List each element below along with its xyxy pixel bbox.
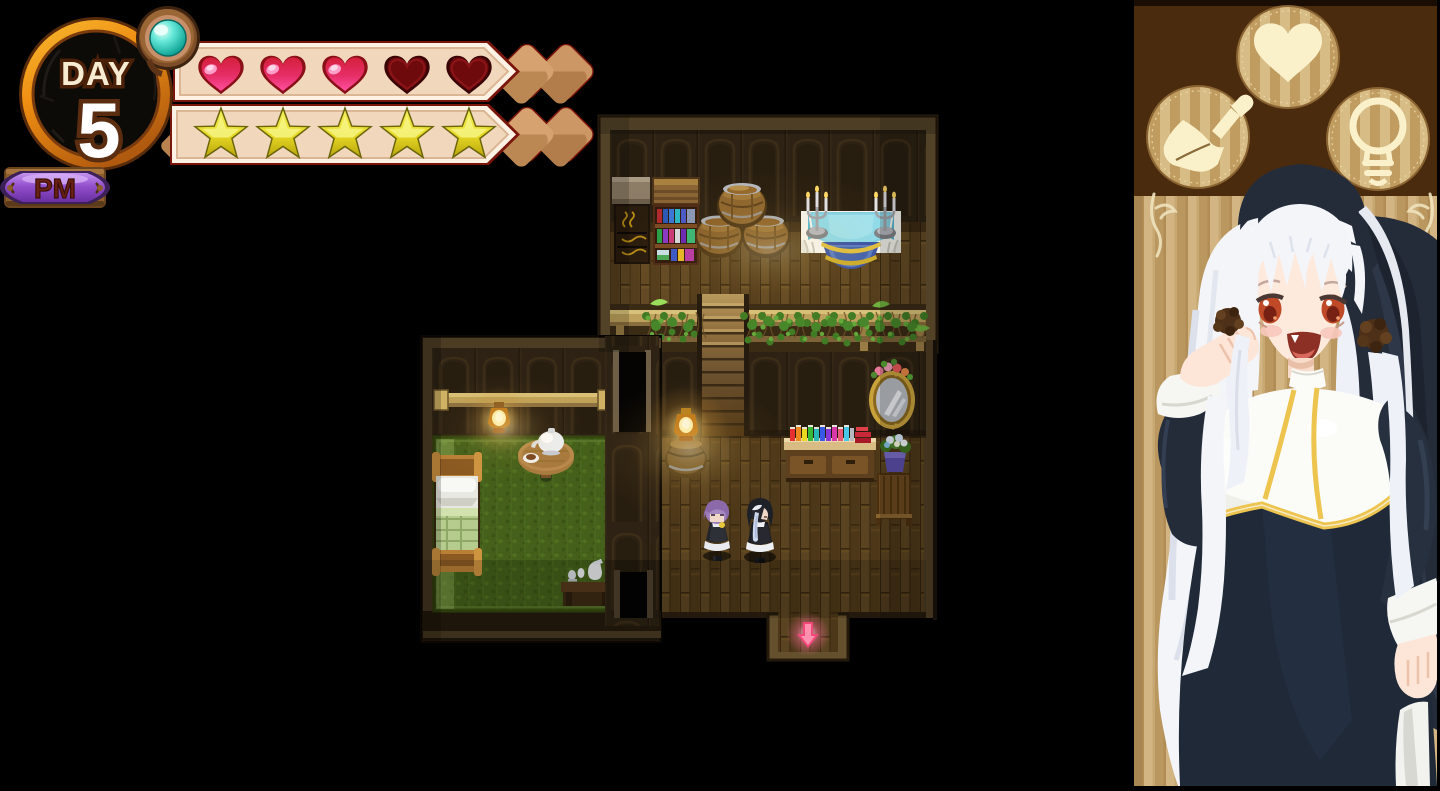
svg-text:PM: PM: [34, 173, 76, 204]
svg-text:5: 5: [77, 86, 120, 174]
